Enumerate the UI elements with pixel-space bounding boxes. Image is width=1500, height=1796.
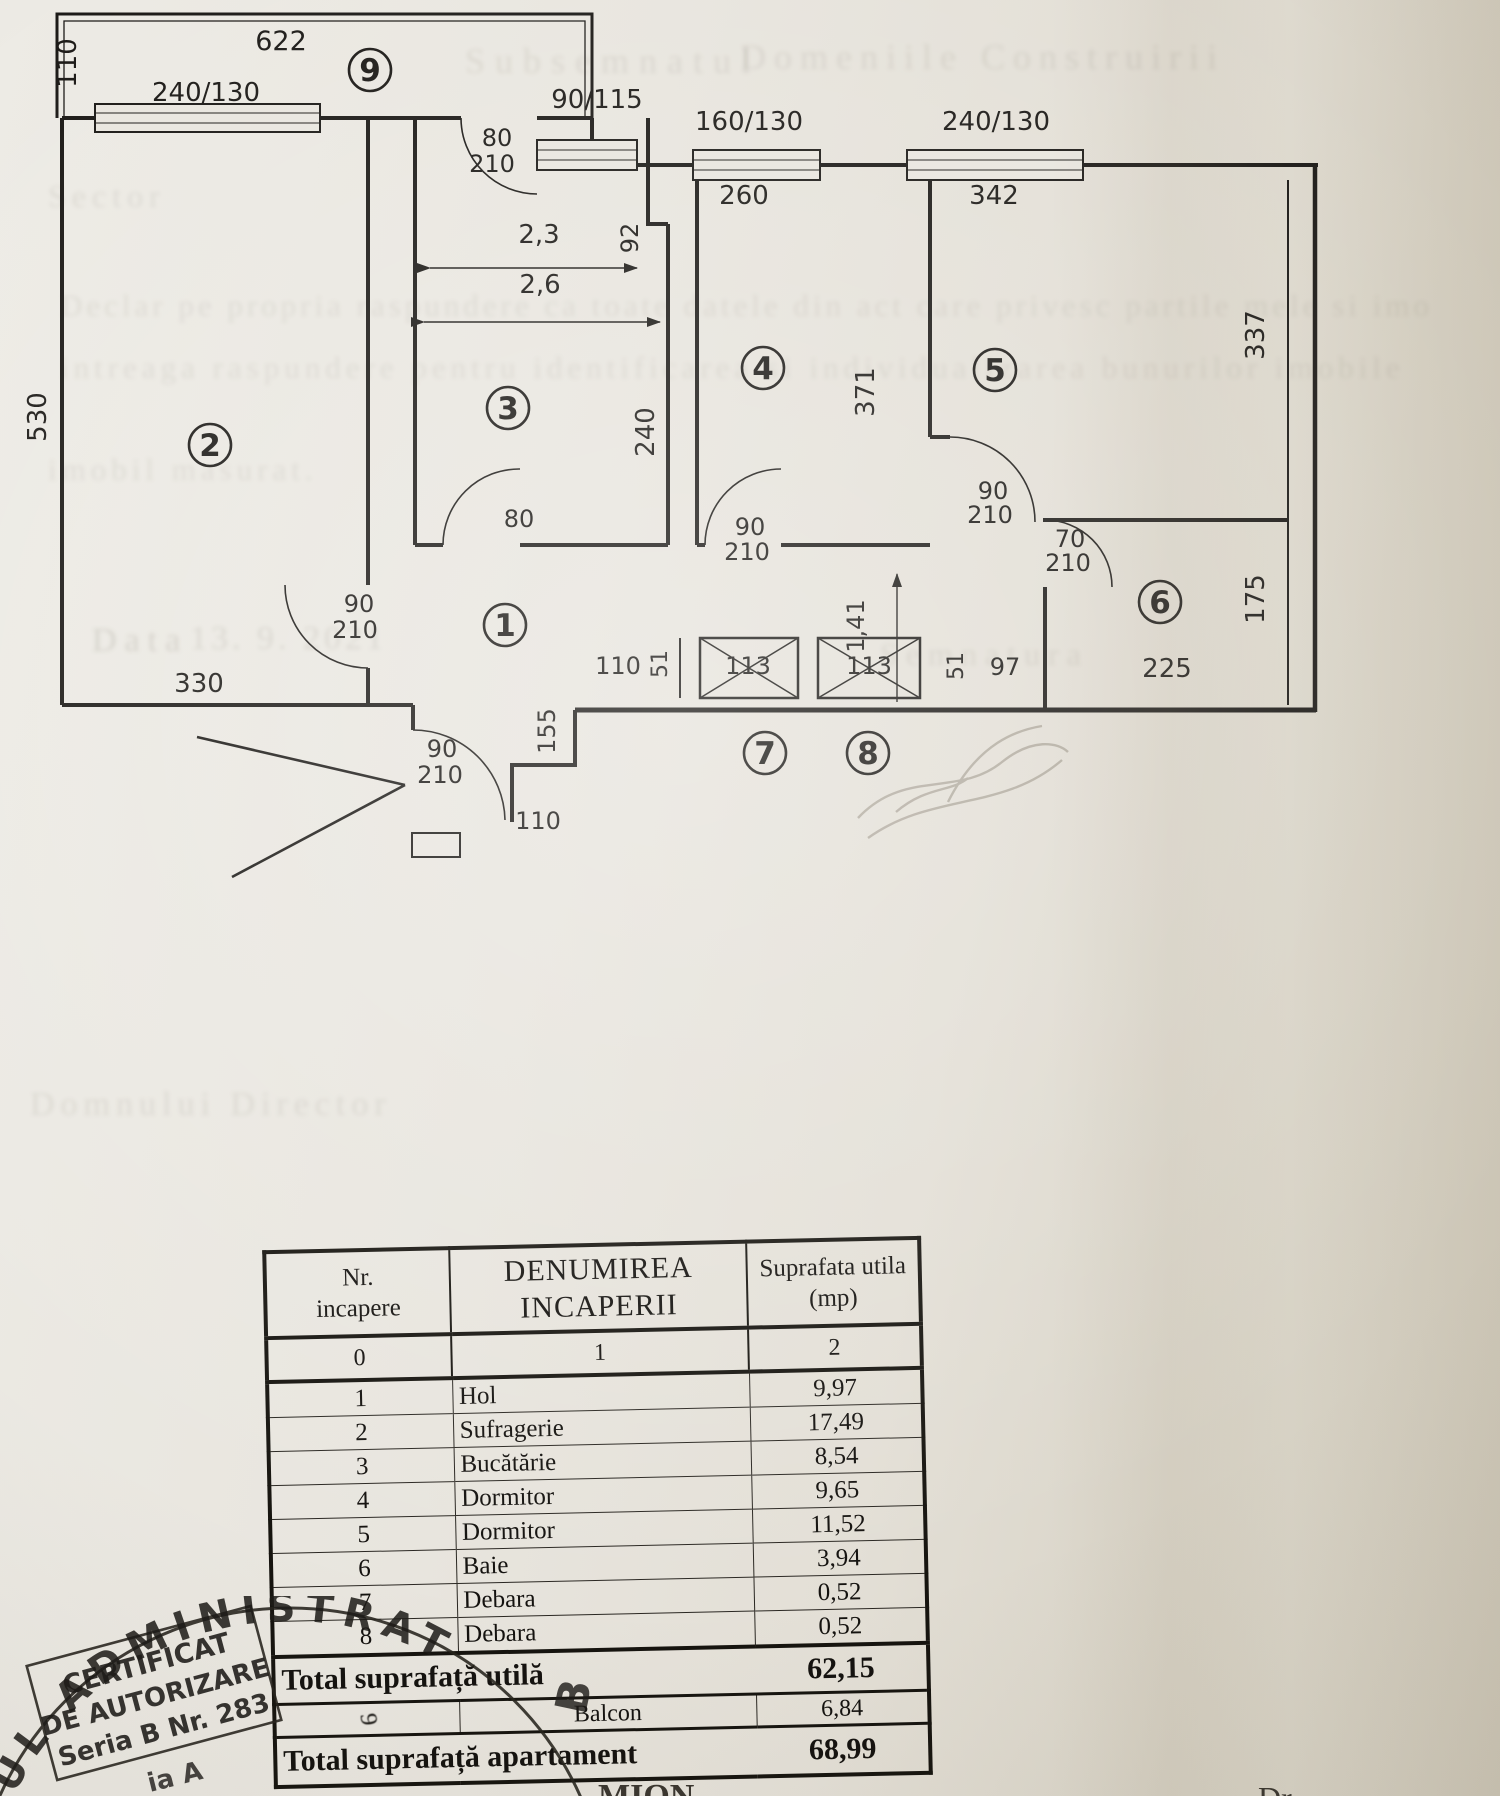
dimension-label: 622 [255,26,307,57]
dimension-label: 337 [1241,310,1271,360]
dimension-label: 2,6 [519,270,560,300]
dimension-label: 210 [332,616,378,644]
room-number: 1 [494,608,516,644]
stamp-line2: DE AUTORIZARE [38,1653,273,1743]
dimension-label: 113 [725,652,771,680]
dimension-label: 155 [533,708,561,754]
room-areas-table: Nr.incapere DENUMIREAINCAPERII Suprafata… [262,1236,933,1789]
dimension-label: 210 [469,150,515,178]
dimension-label: 240 [631,407,661,457]
dimension-label: 371 [851,367,881,417]
dimension-label: 110 [53,38,83,88]
window-240-130-left [95,104,320,132]
stamp-fragment: ia A [144,1756,205,1796]
window-240-130-right [907,150,1083,180]
entry-marker [197,737,460,877]
entry-arrow [197,737,405,877]
dimension-label: 110 [515,807,561,835]
room-number: 9 [359,53,381,89]
balcon-value: 6,84 [756,1690,930,1727]
areas-table-wrap: Nr.incapere DENUMIREAINCAPERII Suprafata… [262,1236,929,1789]
dimension-label: 97 [990,653,1021,681]
total-util-value: 62,15 [755,1643,929,1694]
dimension-label: 92 [616,223,644,254]
scanned-document-page: SubsemnatulDomeniile ConstruiriiSectorDe… [0,0,1500,1796]
room-number: 4 [752,351,774,387]
dimension-label: 90 [427,735,458,763]
balcony-walls [57,14,592,118]
bleed-through-line: Domnului Director [30,1086,392,1124]
dimension-label: 110 [595,652,641,680]
room-number: 5 [984,353,1006,389]
room-number: 8 [857,736,879,772]
stamp-line1: CERTIFICAT [59,1627,234,1702]
dimension-label: 160/130 [695,107,803,137]
window-symbols [95,104,1083,180]
header-suprafata: Suprafata utila(mp) [746,1238,921,1328]
dimension-label: 240/130 [152,78,260,108]
room-number: 2 [199,428,221,464]
walls [62,118,1318,822]
bottom-fragment-right: Dr [1258,1780,1292,1796]
bottom-fragment-center: MION [598,1778,694,1796]
room-number: 7 [754,736,776,772]
dimension-label: 113 [846,652,892,680]
dimension-label: 210 [967,501,1013,529]
dimension-label: 51 [648,650,673,678]
dimension-label: 80 [482,124,513,152]
signature-scribble [858,726,1068,838]
dimension-label: 210 [724,538,770,566]
dimension-label: 342 [969,181,1019,211]
room-number: 6 [1149,585,1171,621]
window-90-115 [537,140,637,170]
dimension-label: 80 [504,505,535,533]
dimension-label: 1,41 [842,599,870,652]
table-header: Nr.incapere DENUMIREAINCAPERII Suprafata… [264,1238,921,1338]
header-denumire: DENUMIREAINCAPERII [449,1242,748,1334]
dimension-label: 210 [1045,549,1091,577]
total-apart-value: 68,99 [757,1723,931,1776]
dimension-label: 240/130 [942,107,1050,137]
room-number: 3 [497,391,519,427]
balcon-nr: 9 [354,1711,382,1726]
dimension-label: 225 [1142,654,1192,684]
dimension-label: 90 [735,513,766,541]
dimension-label: 90 [344,590,375,618]
dimension-label: 2,3 [518,220,559,250]
stamp-line3: Seria B Nr. 283 [55,1688,273,1773]
dimension-label: 51 [944,652,969,680]
header-nr: Nr.incapere [264,1248,451,1338]
window-160-130 [693,150,820,180]
floor-plan: 622110240/1308021090/115160/130240/13026… [0,0,1500,930]
dimension-label: 260 [719,181,769,211]
dimension-label: 175 [1241,574,1271,624]
dimension-label: 530 [23,392,53,442]
dimension-label: 330 [174,669,224,699]
dimension-label: 90/115 [551,85,642,115]
dimension-label: 210 [417,761,463,789]
